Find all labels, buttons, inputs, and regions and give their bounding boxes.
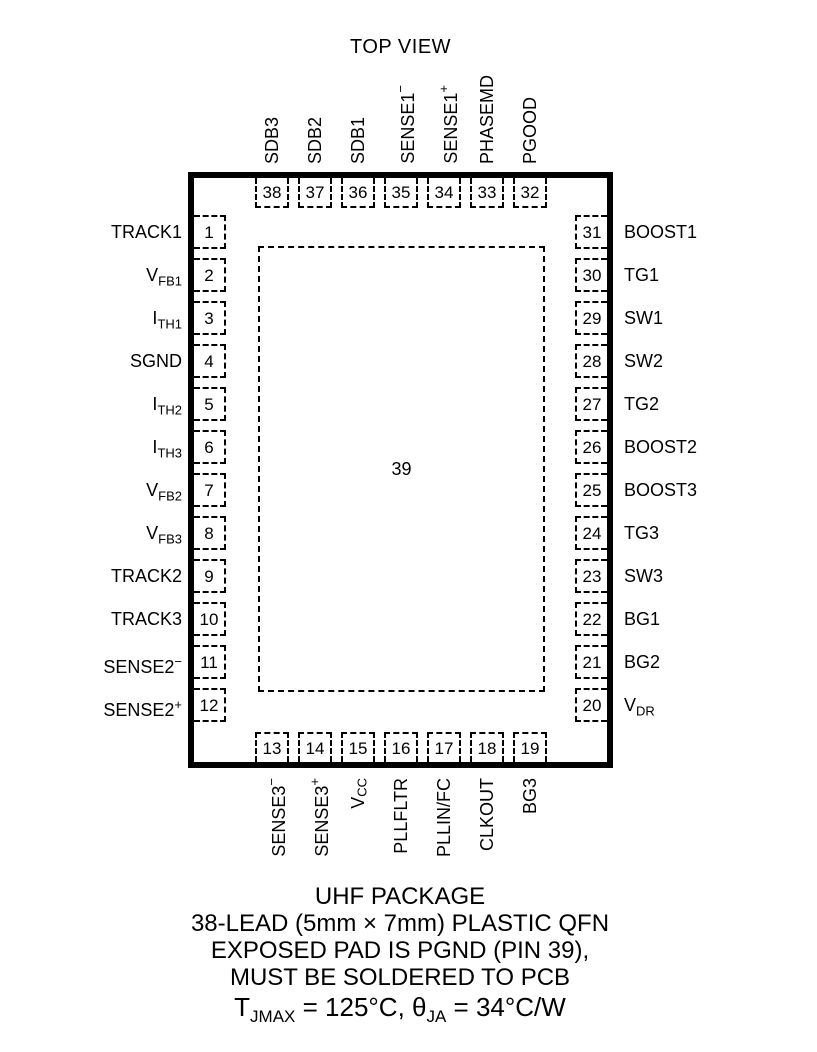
pin-14: 14 <box>298 732 332 762</box>
pin-number: 20 <box>583 697 602 714</box>
pin-number: 33 <box>478 184 497 201</box>
pin-8: 8 <box>194 516 226 550</box>
pin-label-tg1: TG1 <box>624 263 659 287</box>
note-lead-count: 38-LEAD (5mm × 7mm) PLASTIC QFN <box>0 910 800 937</box>
pin-2: 2 <box>194 258 226 292</box>
pin-number: 8 <box>204 525 213 542</box>
pin-number: 27 <box>583 396 602 413</box>
pin-number: 16 <box>392 740 411 757</box>
pin-label-track1: TRACK1 <box>111 220 182 244</box>
pin-number: 11 <box>200 654 218 671</box>
pin-label-ith2: ITH2 <box>152 392 182 416</box>
package-notes: UHF PACKAGE 38-LEAD (5mm × 7mm) PLASTIC … <box>0 883 800 1032</box>
pin-label-boost2: BOOST2 <box>624 435 697 459</box>
pin-label-sense2n: SENSE2− <box>103 650 182 674</box>
pin-37: 37 <box>298 178 332 208</box>
pin-number: 38 <box>263 184 282 201</box>
pin-28: 28 <box>575 344 607 378</box>
pin-number: 2 <box>204 267 213 284</box>
pin-label-vfb2: VFB2 <box>146 478 182 502</box>
exposed-pad: 39 <box>258 246 545 692</box>
pin-26: 26 <box>575 430 607 464</box>
pin-number: 36 <box>349 184 368 201</box>
pin-label-pllfltr: PLLFLTR <box>389 778 413 854</box>
pin-label-pgood: PGOOD <box>518 97 542 164</box>
note-package-name: UHF PACKAGE <box>0 883 800 910</box>
pin-number: 24 <box>583 525 602 542</box>
pin-12: 12 <box>194 688 226 722</box>
pin-24: 24 <box>575 516 607 550</box>
pin-number: 9 <box>204 568 213 585</box>
pin-15: 15 <box>341 732 375 762</box>
pin-label-sense2p: SENSE2+ <box>103 693 182 717</box>
pin-label-vdr: VDR <box>624 693 655 717</box>
pin-label-vfb3: VFB3 <box>146 521 182 545</box>
pin-label-tg3: TG3 <box>624 521 659 545</box>
pin-label-sense3n: SENSE3− <box>260 778 291 857</box>
pin-number: 28 <box>583 353 602 370</box>
pin-label-sw3: SW3 <box>624 564 663 588</box>
pin-number: 31 <box>583 224 602 241</box>
pin-number: 17 <box>435 740 454 757</box>
pin-number: 6 <box>204 439 213 456</box>
pin-number: 37 <box>306 184 325 201</box>
note-solder: MUST BE SOLDERED TO PCB <box>0 964 800 991</box>
pin-label-boost1: BOOST1 <box>624 220 697 244</box>
pin-20: 20 <box>575 688 607 722</box>
pin-label-phasemd: PHASEMD <box>475 75 499 164</box>
pin-label-bg2: BG2 <box>624 650 660 674</box>
pin-number: 3 <box>204 310 213 327</box>
pin-30: 30 <box>575 258 607 292</box>
pin-number: 22 <box>583 611 602 628</box>
pin-label-boost3: BOOST3 <box>624 478 697 502</box>
pin-4: 4 <box>194 344 226 378</box>
pin-19: 19 <box>513 732 547 762</box>
pin-number: 12 <box>200 697 219 714</box>
pin-label-sdb3: SDB3 <box>260 117 284 164</box>
pin-6: 6 <box>194 430 226 464</box>
pin-label-track3: TRACK3 <box>111 607 182 631</box>
pin-number: 18 <box>478 740 497 757</box>
pin-3: 3 <box>194 301 226 335</box>
pin-label-ith3: ITH3 <box>152 435 182 459</box>
pin-number: 23 <box>583 568 602 585</box>
pin-number: 34 <box>435 184 454 201</box>
pin-number: 26 <box>583 439 602 456</box>
pin-number: 4 <box>204 353 213 370</box>
pin-5: 5 <box>194 387 226 421</box>
pin-33: 33 <box>470 178 504 208</box>
pin-34: 34 <box>427 178 461 208</box>
pin-32: 32 <box>513 178 547 208</box>
pin-label-sdb1: SDB1 <box>346 117 370 164</box>
pin-label-vfb1: VFB1 <box>146 263 182 287</box>
pin-11: 11 <box>194 645 226 679</box>
pin-label-bg3: BG3 <box>518 778 542 814</box>
pin-number: 32 <box>521 184 540 201</box>
pin-number: 25 <box>583 482 602 499</box>
pin-16: 16 <box>384 732 418 762</box>
pin-36: 36 <box>341 178 375 208</box>
pin-27: 27 <box>575 387 607 421</box>
note-thermal: TJMAX = 125°C, θJA = 34°C/W <box>0 992 800 1032</box>
pin-number: 5 <box>204 396 213 413</box>
pin-number: 1 <box>204 224 213 241</box>
pin-label-ith1: ITH1 <box>152 306 182 330</box>
pin-25: 25 <box>575 473 607 507</box>
pin-23: 23 <box>575 559 607 593</box>
pin-number: 21 <box>583 654 602 671</box>
pin-29: 29 <box>575 301 607 335</box>
pin-number: 29 <box>583 310 602 327</box>
pin-number: 13 <box>263 740 282 757</box>
pin-label-sw1: SW1 <box>624 306 663 330</box>
pin-label-sw2: SW2 <box>624 349 663 373</box>
pin-label-bg1: BG1 <box>624 607 660 631</box>
pin-number: 14 <box>306 740 325 757</box>
exposed-pad-number: 39 <box>391 459 411 480</box>
pin-17: 17 <box>427 732 461 762</box>
pin-10: 10 <box>194 602 226 636</box>
pin-21: 21 <box>575 645 607 679</box>
pin-13: 13 <box>255 732 289 762</box>
note-exposed-pad: EXPOSED PAD IS PGND (PIN 39), <box>0 937 800 964</box>
pin-label-pllin-fc: PLLIN/FC <box>432 778 456 857</box>
pin-number: 30 <box>583 267 602 284</box>
pin-label-sgnd: SGND <box>130 349 182 373</box>
pin-label-sdb2: SDB2 <box>303 117 327 164</box>
pin-label-clkout: CLKOUT <box>475 778 499 851</box>
pin-label-sense3p: SENSE3+ <box>303 778 334 857</box>
pin-18: 18 <box>470 732 504 762</box>
pin-number: 19 <box>521 740 540 757</box>
pin-31: 31 <box>575 215 607 249</box>
pin-label-tg2: TG2 <box>624 392 659 416</box>
pinout-diagram: TOP VIEW 39 1234567891011123130292827262… <box>0 0 817 1052</box>
pin-1: 1 <box>194 215 226 249</box>
pin-number: 15 <box>349 740 368 757</box>
pin-label-track2: TRACK2 <box>111 564 182 588</box>
package-outline: 39 1234567891011123130292827262524232221… <box>188 172 613 768</box>
pin-label-sense1n: SENSE1− <box>389 85 420 164</box>
top-view-title: TOP VIEW <box>188 36 613 59</box>
pin-label-vcc: VCC <box>346 778 375 809</box>
pin-number: 35 <box>392 184 411 201</box>
pin-35: 35 <box>384 178 418 208</box>
pin-7: 7 <box>194 473 226 507</box>
pin-22: 22 <box>575 602 607 636</box>
pin-number: 7 <box>204 482 213 499</box>
pin-label-sense1p: SENSE1+ <box>432 85 463 164</box>
pin-number: 10 <box>200 611 219 628</box>
pin-9: 9 <box>194 559 226 593</box>
pin-38: 38 <box>255 178 289 208</box>
